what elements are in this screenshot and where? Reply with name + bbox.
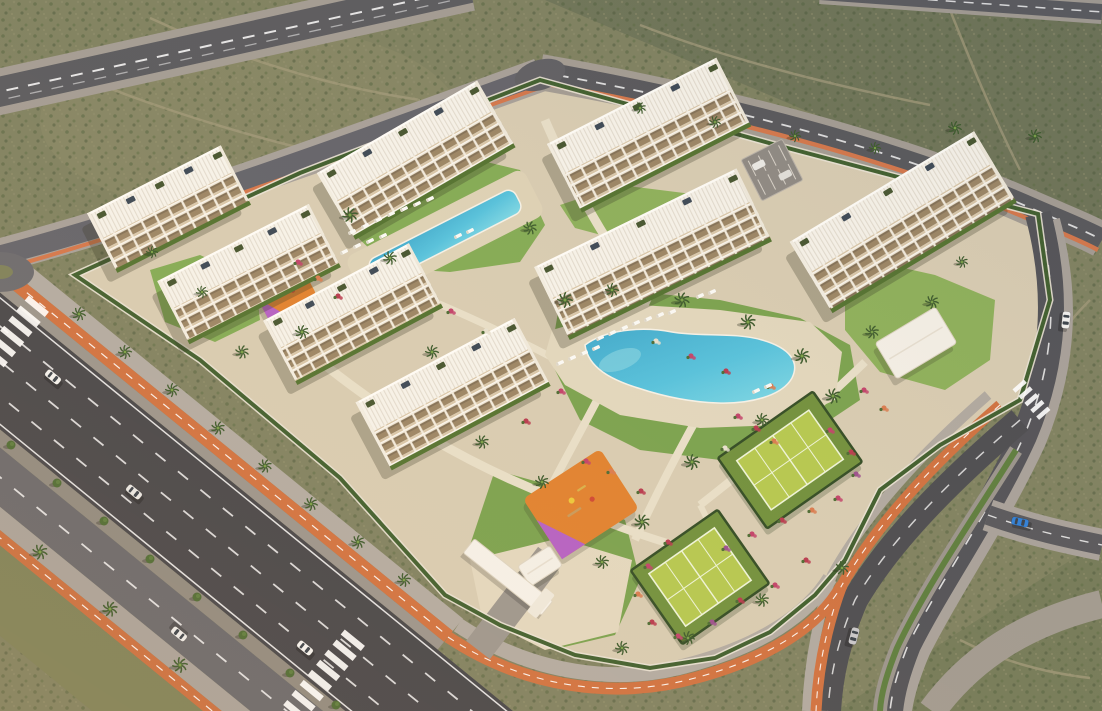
flower [339, 296, 343, 300]
median-tree [193, 593, 202, 602]
flower [612, 471, 616, 475]
flower [783, 520, 787, 524]
shrub-leaf [777, 520, 780, 523]
median-tree [100, 517, 109, 526]
palm-tree [685, 455, 699, 469]
flower [775, 441, 779, 445]
flower [562, 391, 566, 395]
car-roof [1062, 317, 1069, 321]
shrub-leaf [686, 356, 689, 359]
palm-tree [166, 384, 179, 397]
flower [319, 278, 323, 282]
flower [527, 421, 531, 425]
flower [857, 474, 861, 478]
flower [657, 341, 661, 345]
shrub-leaf [801, 560, 804, 563]
shrub-leaf [521, 421, 524, 424]
car-windshield [1062, 321, 1069, 325]
shrub-leaf [720, 448, 723, 451]
flower [713, 622, 717, 626]
architectural-render [0, 0, 1102, 711]
flower [831, 430, 835, 434]
shrub-leaf [293, 262, 296, 265]
median-tree [286, 669, 295, 678]
shrub-leaf [581, 461, 584, 464]
flower [772, 386, 776, 390]
shrub-leaf [770, 585, 773, 588]
flower [813, 510, 817, 514]
shrub-leaf [707, 622, 710, 625]
shrub-leaf [333, 296, 336, 299]
palm-tree [789, 130, 800, 141]
median-tree [7, 441, 16, 450]
shrub-leaf [833, 498, 836, 501]
flower [739, 416, 743, 420]
flower [487, 331, 491, 335]
median-tree [239, 631, 248, 640]
flower [727, 371, 731, 375]
flower [885, 408, 889, 412]
flower [669, 542, 673, 546]
flower [653, 622, 657, 626]
shrub-leaf [721, 371, 724, 374]
flower [807, 560, 811, 564]
flower [753, 534, 757, 538]
flower [741, 600, 745, 604]
median-tree [146, 555, 155, 564]
flower [757, 428, 761, 432]
flower [639, 594, 643, 598]
flower [642, 491, 646, 495]
shrub-leaf [633, 594, 636, 597]
flower [852, 452, 856, 456]
aerial-scene [0, 0, 1102, 711]
shrub-leaf [747, 534, 750, 537]
shrub-leaf [851, 474, 854, 477]
median-tree [332, 701, 341, 710]
palm-tree [606, 284, 619, 297]
shrub-leaf [556, 391, 559, 394]
shrub-leaf [643, 566, 646, 569]
shrub-leaf [606, 471, 609, 474]
flower [692, 356, 696, 360]
flower [839, 498, 843, 502]
flower [679, 636, 683, 640]
flower [865, 390, 869, 394]
shrub-leaf [879, 408, 882, 411]
shrub-leaf [735, 600, 738, 603]
shrub-leaf [769, 441, 772, 444]
shrub-leaf [721, 548, 724, 551]
shrub-leaf [446, 311, 449, 314]
flower [649, 566, 653, 570]
shrub-leaf [846, 452, 849, 455]
flower [587, 461, 591, 465]
shrub-leaf [636, 491, 639, 494]
shrub-leaf [663, 542, 666, 545]
palm-tree [146, 246, 157, 257]
shrub-leaf [733, 416, 736, 419]
flower [727, 548, 731, 552]
shrub-leaf [647, 622, 650, 625]
flower [776, 585, 780, 589]
shrub-leaf [807, 510, 810, 513]
flower [726, 448, 730, 452]
flower [299, 262, 303, 266]
median-tree [53, 479, 62, 488]
shrub-leaf [481, 331, 484, 334]
shrub-leaf [825, 430, 828, 433]
shrub-leaf [313, 278, 316, 281]
flower [452, 311, 456, 315]
shrub-leaf [673, 636, 676, 639]
shrub-leaf [751, 428, 754, 431]
shrub-leaf [859, 390, 862, 393]
shrub-leaf [651, 341, 654, 344]
